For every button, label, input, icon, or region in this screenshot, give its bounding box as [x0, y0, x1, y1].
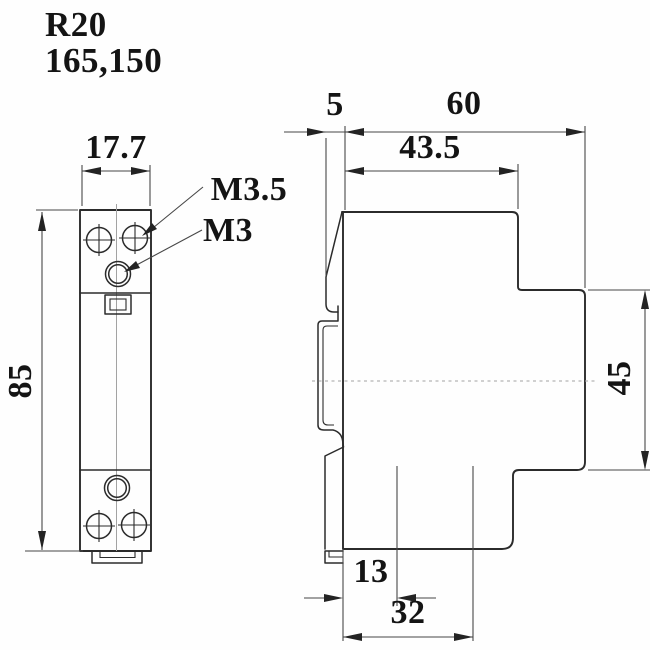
m3-5-leader	[148, 187, 203, 232]
top-draft-and-claw	[326, 212, 342, 312]
lower-left-screw	[83, 510, 115, 542]
dim-height-85: 85	[4, 364, 38, 399]
front-view	[80, 204, 151, 563]
thread-m3: M3	[203, 214, 253, 248]
thread-m3-5: M3.5	[211, 173, 288, 207]
technical-drawing-page: R20 165,150 17.7 85 M3.5 M3 5 60 43.5 45…	[0, 0, 650, 650]
dim-depth-60: 60	[447, 87, 482, 121]
dimension-drawing-canvas	[0, 0, 650, 650]
dim-width-32: 32	[391, 596, 426, 630]
leader-lines	[124, 187, 203, 272]
side-foot-inner	[329, 551, 343, 557]
dim-offset-13: 13	[354, 555, 389, 589]
part-number-label: 165,150	[45, 43, 162, 78]
dim-height-45: 45	[603, 361, 637, 396]
model-label: R20	[45, 7, 107, 42]
side-view	[312, 212, 598, 563]
front-mounting-foot	[92, 551, 142, 563]
indicator-window	[105, 295, 131, 314]
rail-channel-outer	[318, 312, 344, 549]
upper-m3-hole	[106, 262, 131, 287]
rail-channel-inner	[323, 326, 338, 425]
din-rail-details	[318, 212, 344, 563]
upper-right-screw	[119, 222, 151, 254]
dim-width-17-7: 17.7	[85, 131, 147, 165]
lower-right-screw	[118, 509, 150, 541]
upper-left-screw	[83, 224, 115, 256]
dim-depth-43-5: 43.5	[399, 131, 461, 165]
dim-offset-5: 5	[326, 88, 344, 122]
